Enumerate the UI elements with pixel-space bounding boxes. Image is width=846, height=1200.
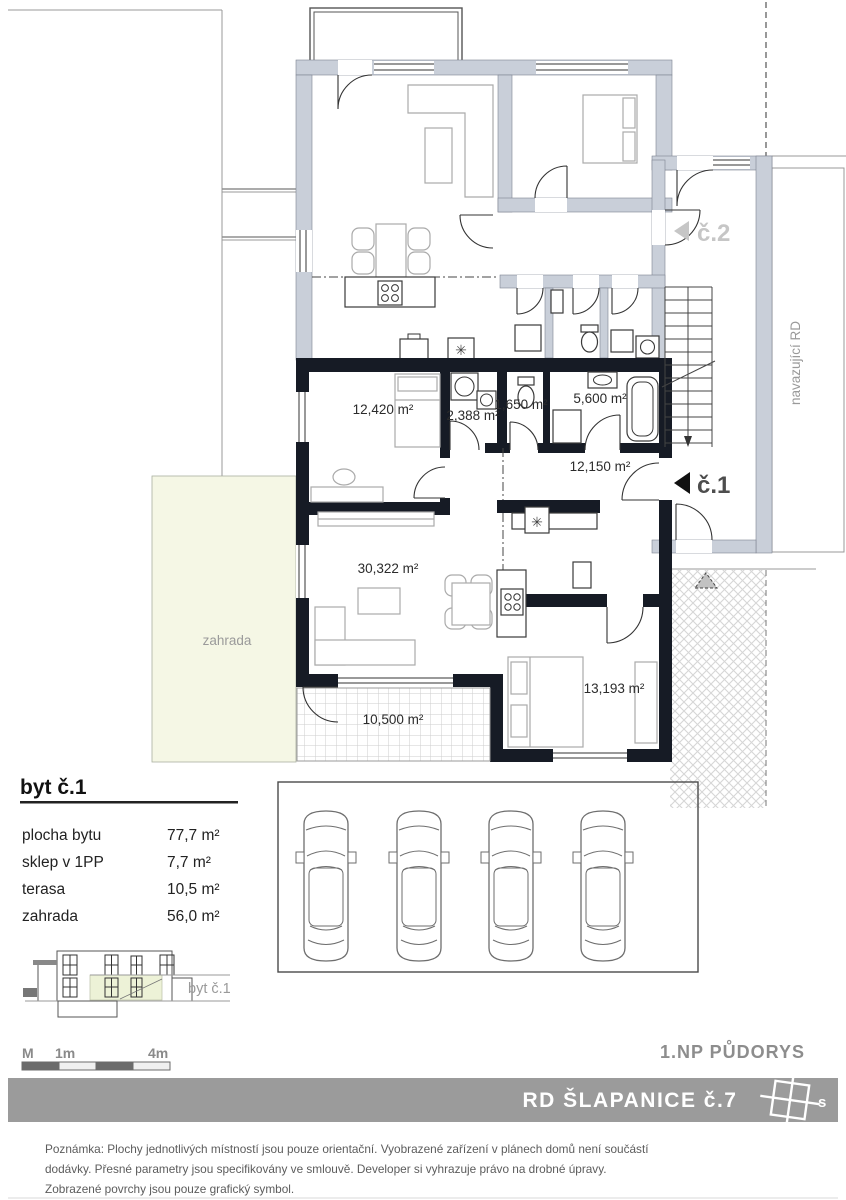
sink-symbol: ✳ [455, 342, 467, 358]
washing-machine-icon [636, 336, 659, 358]
unit-markers: č.2 č.1 [674, 220, 730, 499]
coffee-table-icon [358, 588, 400, 614]
legend-row-value: 10,5 m² [167, 881, 220, 898]
sofa-icon [315, 607, 415, 665]
room-area-label: 13,193 m² [584, 681, 645, 696]
scale-bar: M 1m 4m [22, 1045, 170, 1070]
scale-unit-label: M [22, 1045, 34, 1061]
legend-underline [20, 801, 238, 804]
unit1-arrow-icon [674, 472, 690, 494]
shower-icon [515, 325, 541, 351]
elevation-drawing: byt č.1 [23, 951, 231, 1017]
legend-row-value: 56,0 m² [167, 908, 220, 925]
kitchen-icons: ✳ [497, 507, 597, 637]
room-area-label: 30,322 m² [358, 561, 419, 576]
bathroom-fixtures [553, 372, 658, 443]
title-banner: RD ŠLAPANICE č.7 s [8, 1072, 838, 1130]
garden-area: zahrada [152, 476, 296, 762]
legend-row-label: sklep v 1PP [22, 854, 104, 871]
footnote-line: Poznámka: Plochy jednotlivých místností … [45, 1142, 649, 1156]
legend-row-label: terasa [22, 881, 65, 898]
unit1-marker: č.1 [697, 472, 730, 499]
scale-end-label: 4m [148, 1045, 168, 1061]
shower-icon [451, 373, 478, 400]
project-title: RD ŠLAPANICE č.7 [523, 1088, 738, 1112]
floorplan-drawing: zahrada navazující RD [0, 0, 846, 1200]
room-area-label: 2,388 m² [446, 408, 500, 423]
elevation-unit-label: byt č.1 [188, 981, 231, 997]
washbasin-icon [477, 391, 496, 409]
legend-title: byt č.1 [20, 776, 87, 799]
room-area-label: 10,500 m² [363, 712, 424, 727]
unit2-marker: č.2 [697, 220, 730, 247]
legend-row-label: zahrada [22, 908, 78, 925]
legend: byt č.1 plocha bytu 77,7 m² sklep v 1PP … [20, 776, 238, 925]
unit1-apartment: ✳ 12,420 m² 2,388 m² 1,650 m² 5,6 [296, 358, 672, 762]
room-area-label: 12,420 m² [353, 402, 414, 417]
garden-surface [152, 476, 296, 762]
footnote-line: dodávky. Přesné parametry jsou specifiko… [45, 1162, 607, 1176]
wardrobe-icon [635, 662, 657, 743]
sink-symbol: ✳ [531, 514, 543, 530]
adjacent-house: navazující RD [772, 168, 844, 552]
car-icon [481, 811, 541, 961]
scale-start-label: 1m [55, 1045, 75, 1061]
legend-row-value: 77,7 m² [167, 827, 220, 844]
balcony [310, 8, 462, 62]
north-label: s [818, 1094, 826, 1111]
walkway [670, 570, 766, 808]
drawing-title: 1.NP PŮDORYS [660, 1040, 805, 1062]
legend-row-label: plocha bytu [22, 827, 101, 844]
adjacent-house-outline [772, 168, 844, 552]
chair-icon [333, 469, 355, 485]
car-icon [573, 811, 633, 961]
garden-label: zahrada [203, 633, 252, 648]
desk-icon [311, 487, 383, 502]
dining-set-icon [445, 575, 492, 629]
unit2-arrow-icon [674, 221, 689, 241]
legend-row-value: 7,7 m² [167, 854, 211, 871]
dining-table-icon [376, 224, 406, 277]
adjacent-house-label: navazující RD [788, 321, 803, 405]
toilet-icon [581, 325, 598, 352]
footnote: Poznámka: Plochy jednotlivých místností … [8, 1142, 838, 1198]
footnote-line: Zobrazené povrchy jsou pouze grafický sy… [45, 1182, 294, 1196]
car-icon [389, 811, 449, 961]
room-area-label: 5,600 m² [573, 391, 627, 406]
room-area-label: 1,650 m² [494, 397, 548, 412]
floorplan-page: zahrada navazující RD [0, 0, 846, 1200]
car-icon [296, 811, 356, 961]
parking-area [278, 782, 698, 972]
bed-icon [508, 657, 583, 747]
room-area-label: 12,150 m² [570, 459, 631, 474]
